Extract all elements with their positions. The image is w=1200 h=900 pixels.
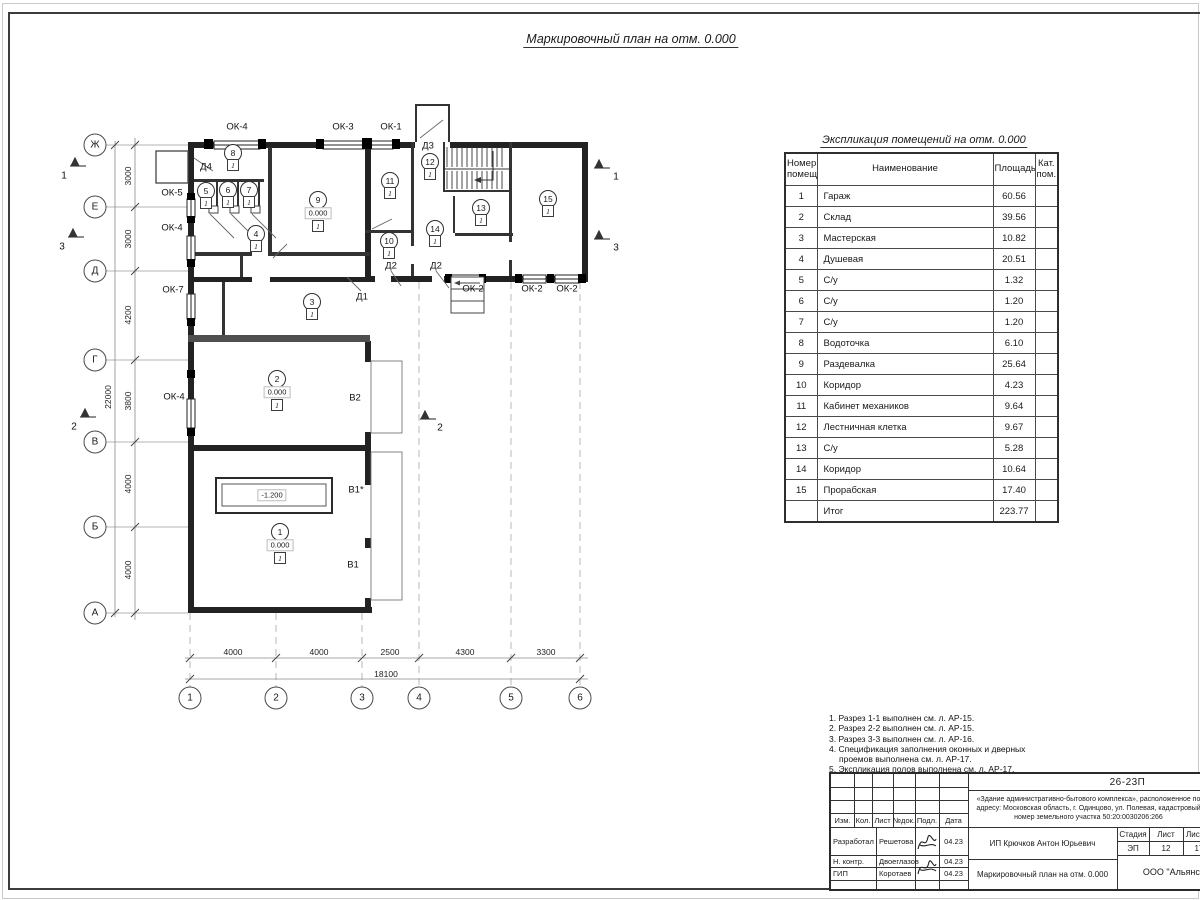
stamp-header-cell: Изм. — [831, 813, 854, 827]
window-label: ОК-2 — [521, 284, 542, 295]
table-row: 12Лестничная клетка9.67 — [785, 417, 1058, 438]
floor-type-mark: 1 — [384, 187, 396, 199]
cell-area: 20.51 — [993, 249, 1035, 270]
cell-name: Гараж — [817, 186, 993, 207]
cell-area: 9.64 — [993, 396, 1035, 417]
elevation-mark: 0.000 — [264, 386, 291, 398]
dim-bottom-total: 18100 — [374, 669, 398, 679]
role-name: Двоеглазов — [877, 855, 917, 867]
role-date: 04.23 — [939, 867, 968, 880]
table-row: 8Водоточка6.10 — [785, 333, 1058, 354]
stamp-header-cell: Дата — [939, 813, 968, 827]
document-title: Маркировочный план на отм. 0.000 — [968, 859, 1117, 889]
cell-num — [785, 501, 817, 523]
dim-left-total: 22000 — [103, 385, 113, 409]
cell-num: 5 — [785, 270, 817, 291]
axis-col-3: 3 — [351, 687, 374, 710]
pit-elevation-mark: -1.200 — [257, 489, 286, 501]
cell-area: 6.10 — [993, 333, 1035, 354]
dim-left: 3000 — [123, 167, 133, 186]
floor-type-mark: 1 — [222, 196, 234, 208]
thick-partition-wall — [188, 335, 370, 342]
axis-col-4: 4 — [408, 687, 431, 710]
cell-cat — [1035, 312, 1058, 333]
section-number-3: 3 — [59, 242, 65, 253]
stage-value: ЭП — [1117, 841, 1149, 855]
table-total-row: Итог223.77 — [785, 501, 1058, 523]
cell-name: Итог — [817, 501, 993, 523]
notes-list: 1. Разрез 1-1 выполнен см. л. АР-15.2. Р… — [829, 713, 1047, 775]
cell-cat — [1035, 249, 1058, 270]
door-label: Д2 — [385, 261, 397, 272]
cell-name: Душевая — [817, 249, 993, 270]
role-name: Решетова — [877, 827, 917, 855]
dimension-lines — [115, 138, 588, 679]
cell-name: Раздевалка — [817, 354, 993, 375]
window-label: ОК-5 — [161, 188, 182, 199]
cell-num: 15 — [785, 480, 817, 501]
dim-bottom: 4300 — [456, 647, 475, 657]
cell-name: Мастерская — [817, 228, 993, 249]
floor-type-mark: 1 — [383, 247, 395, 259]
cell-num: 10 — [785, 375, 817, 396]
cell-area: 1.32 — [993, 270, 1035, 291]
table-row: 9Раздевалка25.64 — [785, 354, 1058, 375]
cell-num: 1 — [785, 186, 817, 207]
table-row: 7С/у1.20 — [785, 312, 1058, 333]
signature-razrabotal — [915, 829, 939, 855]
cell-area: 39.56 — [993, 207, 1035, 228]
cell-name: С/у — [817, 312, 993, 333]
axis-row-Д: Д — [84, 260, 107, 283]
cell-name: Склад — [817, 207, 993, 228]
axis-col-5: 5 — [500, 687, 523, 710]
cell-area: 25.64 — [993, 354, 1035, 375]
cell-area: 1.20 — [993, 291, 1035, 312]
axis-row-Б: Б — [84, 516, 107, 539]
signature-gip — [915, 856, 939, 880]
stamp-header-cell: №док. — [893, 813, 915, 827]
gate-aprons — [371, 361, 402, 600]
window-label: ОК-3 — [332, 122, 353, 133]
cell-num: 13 — [785, 438, 817, 459]
floor-type-mark: 1 — [429, 235, 441, 247]
axis-row-В: В — [84, 431, 107, 454]
door-label: Д4 — [200, 162, 212, 173]
note-item: 3. Разрез 3-3 выполнен см. л. АР-16. — [829, 734, 1047, 744]
cell-name: С/у — [817, 270, 993, 291]
column-header-area: Площадь, — [993, 153, 1035, 186]
axis-row-А: А — [84, 602, 107, 625]
floor-type-mark: 1 — [475, 214, 487, 226]
cell-num: 4 — [785, 249, 817, 270]
cell-cat — [1035, 291, 1058, 312]
cell-name: Лестничная клетка — [817, 417, 993, 438]
table-row: 5С/у1.32 — [785, 270, 1058, 291]
table-row: 11Кабинет механиков9.64 — [785, 396, 1058, 417]
stage-label: Стадия — [1117, 827, 1149, 841]
role-label: Н. контр. — [831, 855, 878, 867]
cell-area: 5.28 — [993, 438, 1035, 459]
floor-type-mark: 1 — [250, 240, 262, 252]
stamp-header-cell: Кол. — [854, 813, 872, 827]
column-header-name: Наименование — [817, 153, 993, 186]
project-code: 26-23П — [968, 774, 1200, 790]
axis-col-1: 1 — [179, 687, 202, 710]
cell-name: Коридор — [817, 375, 993, 396]
stamp-header-cell: Подл. — [915, 813, 939, 827]
explication-title: Экспликация помещений на отм. 0.000 — [820, 134, 1027, 148]
table-row: 1Гараж60.56 — [785, 186, 1058, 207]
cell-area: 1.20 — [993, 312, 1035, 333]
note-item: 4. Спецификация заполнения оконных и две… — [829, 744, 1047, 765]
section-number-1: 1 — [61, 171, 67, 182]
cell-cat — [1035, 333, 1058, 354]
door-label: Д3 — [422, 141, 434, 152]
cell-name: С/у — [817, 291, 993, 312]
dim-left: 4000 — [123, 561, 133, 580]
cell-num: 6 — [785, 291, 817, 312]
axis-row-Г: Г — [84, 349, 107, 372]
dim-bottom: 2500 — [381, 647, 400, 657]
floor-type-mark: 1 — [227, 159, 239, 171]
cell-name: Прорабская — [817, 480, 993, 501]
cell-area: 223.77 — [993, 501, 1035, 523]
sheet-number: 12 — [1149, 841, 1183, 855]
table-row: 10Коридор4.23 — [785, 375, 1058, 396]
stamp-header-cell: Лист — [872, 813, 893, 827]
door-label: Д2 — [430, 261, 442, 272]
client-name: ИП Крючков Антон Юрьевич — [968, 827, 1117, 859]
column-header-number: Номер помещ. — [785, 153, 817, 186]
axis-col-6: 6 — [569, 687, 592, 710]
cell-num: 12 — [785, 417, 817, 438]
dim-left: 3000 — [123, 230, 133, 249]
table-row: 3Мастерская10.82 — [785, 228, 1058, 249]
cell-cat — [1035, 375, 1058, 396]
window-label: ОК-4 — [163, 392, 184, 403]
cell-cat — [1035, 417, 1058, 438]
sheets-total: 17 — [1183, 841, 1200, 855]
table-row: 4Душевая20.51 — [785, 249, 1058, 270]
window-label: ОК-7 — [162, 285, 183, 296]
cell-name: Кабинет механиков — [817, 396, 993, 417]
cell-num: 11 — [785, 396, 817, 417]
sheets-label: Листов — [1183, 827, 1200, 841]
entrance-steps — [451, 277, 484, 313]
table-row: 14Коридор10.64 — [785, 459, 1058, 480]
axis-row-Ж: Ж — [84, 134, 107, 157]
note-item: 1. Разрез 1-1 выполнен см. л. АР-15. — [829, 713, 1047, 723]
cell-area: 10.82 — [993, 228, 1035, 249]
walls — [188, 142, 588, 613]
role-date: 04.23 — [939, 855, 968, 867]
cell-cat — [1035, 207, 1058, 228]
floor-type-mark: 1 — [542, 205, 554, 217]
table-row: 6С/у1.20 — [785, 291, 1058, 312]
floor-type-mark: 1 — [274, 552, 286, 564]
cell-name: Коридор — [817, 459, 993, 480]
floor-type-mark: 1 — [200, 197, 212, 209]
note-item: 2. Разрез 2-2 выполнен см. л. АР-15. — [829, 723, 1047, 733]
window-label: ОК-1 — [380, 122, 401, 133]
floor-type-mark: 1 — [424, 168, 436, 180]
dim-bottom: 4000 — [224, 647, 243, 657]
section-number-3: 3 — [613, 243, 619, 254]
cell-area: 10.64 — [993, 459, 1035, 480]
elevation-mark: 0.000 — [267, 539, 294, 551]
cell-num: 9 — [785, 354, 817, 375]
drawing-sheet: ЖЕДГВБА123456300030004200380040004000220… — [0, 0, 1200, 900]
cell-area: 60.56 — [993, 186, 1035, 207]
section-number-2: 2 — [71, 422, 77, 433]
dim-bottom: 4000 — [310, 647, 329, 657]
cell-cat — [1035, 270, 1058, 291]
cell-area: 9.67 — [993, 417, 1035, 438]
sheet-title: Маркировочный план на отм. 0.000 — [523, 32, 738, 48]
gate-label: В2 — [349, 393, 361, 404]
cell-area: 17.40 — [993, 480, 1035, 501]
section-number-2: 2 — [437, 423, 443, 434]
gate-label: В1* — [348, 485, 363, 496]
cell-name: С/у — [817, 438, 993, 459]
cell-area: 4.23 — [993, 375, 1035, 396]
cell-cat — [1035, 480, 1058, 501]
column-header-category: Кат. пом. — [1035, 153, 1058, 186]
window-label: ОК-2 — [556, 284, 577, 295]
cell-num: 8 — [785, 333, 817, 354]
title-block: Изм.Кол.Лист№док.Подл.Дата РазработалРеш… — [829, 772, 1200, 891]
project-description: «Здание административно-бытового комплек… — [970, 790, 1200, 827]
table-row: 13С/у5.28 — [785, 438, 1058, 459]
dim-left: 3800 — [123, 392, 133, 411]
cell-cat — [1035, 354, 1058, 375]
cell-name: Водоточка — [817, 333, 993, 354]
floor-type-mark: 1 — [243, 196, 255, 208]
cell-num: 7 — [785, 312, 817, 333]
door-label: Д1 — [356, 292, 368, 303]
window-label: ОК-4 — [161, 223, 182, 234]
organization-name: ООО "Альянс" — [1117, 855, 1200, 889]
table-row: 15Прорабская17.40 — [785, 480, 1058, 501]
floor-type-mark: 1 — [271, 399, 283, 411]
cell-num: 14 — [785, 459, 817, 480]
role-label: Разработал — [831, 827, 878, 855]
cell-cat — [1035, 396, 1058, 417]
axis-col-2: 2 — [265, 687, 288, 710]
dim-left: 4000 — [123, 475, 133, 494]
cell-cat — [1035, 438, 1058, 459]
axis-row-Е: Е — [84, 196, 107, 219]
sheet-label: Лист — [1149, 827, 1183, 841]
cell-num: 2 — [785, 207, 817, 228]
floor-type-mark: 1 — [312, 220, 324, 232]
gate-label: В1 — [347, 560, 359, 571]
stairs — [445, 147, 509, 189]
elevation-mark: 0.000 — [305, 207, 332, 219]
cell-cat — [1035, 459, 1058, 480]
window-label: ОК-4 — [226, 122, 247, 133]
cell-cat — [1035, 228, 1058, 249]
role-name: Коротаев — [877, 867, 917, 880]
dim-left: 4200 — [123, 306, 133, 325]
cell-num: 3 — [785, 228, 817, 249]
floor-type-mark: 1 — [306, 308, 318, 320]
table-row: 2Склад39.56 — [785, 207, 1058, 228]
cell-cat — [1035, 501, 1058, 523]
role-date: 04.23 — [939, 827, 968, 855]
window-label: ОК-2 — [462, 284, 483, 295]
porch — [156, 151, 188, 183]
section-number-1: 1 — [613, 172, 619, 183]
dim-bottom: 3300 — [537, 647, 556, 657]
explication-table: Номер помещ. Наименование Площадь, Кат. … — [784, 152, 1059, 523]
role-label: ГИП — [831, 867, 878, 880]
cell-cat — [1035, 186, 1058, 207]
